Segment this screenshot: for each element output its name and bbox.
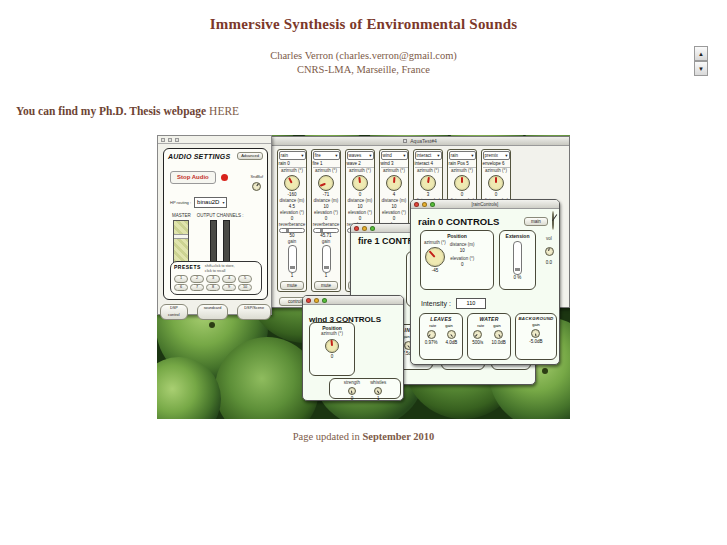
preset-button[interactable]: 5 — [238, 275, 252, 283]
rain-controls-window: [rainControls] rain 0 CONTROLS main Posi… — [410, 199, 560, 365]
up-arrow-icon: ▲ — [698, 51, 704, 57]
preset-button[interactable]: 9 — [222, 284, 236, 292]
mute-button[interactable]: mute — [280, 281, 304, 290]
preset-button[interactable]: 6 — [174, 284, 188, 292]
dial-needle — [429, 250, 436, 257]
traffic-light-icons[interactable] — [354, 226, 375, 231]
channel-strip: fire ▾ fire 1 azimuth (°) -71 distance (… — [311, 149, 341, 292]
water-gain-dial[interactable] — [494, 330, 503, 339]
zoom-icon[interactable] — [370, 226, 375, 231]
strip-name: interact 4 — [415, 160, 442, 168]
mute-button[interactable]: mute — [314, 281, 338, 290]
whistles-label: whistles — [370, 380, 386, 386]
mixer-window-title: AquaTest#4 — [410, 138, 436, 144]
preset-button[interactable]: 7 — [190, 284, 204, 292]
minimize-icon[interactable] — [314, 298, 319, 303]
rain-distance-value[interactable]: 10 — [450, 248, 475, 254]
main-button[interactable]: main — [524, 217, 548, 226]
down-arrow-icon: ▼ — [698, 66, 704, 72]
preset-button[interactable]: 3 — [206, 275, 220, 283]
window-button-icon[interactable] — [168, 138, 172, 142]
gain-slider[interactable] — [322, 245, 331, 273]
strip-name: wave 2 — [347, 160, 374, 168]
presets-label: PRESETS — [174, 264, 201, 273]
dial-needle — [498, 334, 501, 337]
source-dropdown-value: rain — [451, 152, 459, 159]
output-channels-label: OUTPUT CHANNELS : — [197, 213, 244, 219]
dial-needle — [548, 248, 550, 251]
gain-value: 1 — [325, 273, 328, 279]
thesis-text: You can find my Ph.D. Thesis webpage — [16, 105, 206, 117]
software-screenshot: AquaTest#4 rain ▾ rain 0 azimuth (°) -16… — [157, 135, 570, 419]
dial-needle — [535, 333, 536, 336]
hp-routing-label: HP routing : — [170, 200, 191, 206]
dial-needle — [256, 184, 259, 187]
updated-date: September 2010 — [362, 431, 434, 442]
dial-needle — [377, 391, 379, 394]
preset-button[interactable]: 2 — [190, 275, 204, 283]
dial-needle — [358, 176, 361, 183]
background-gain-label: gain — [532, 322, 540, 327]
window-icon — [403, 139, 407, 143]
water-rate-value: 500/s — [472, 340, 483, 346]
azimuth-dial[interactable] — [386, 175, 402, 191]
master-label: MASTER — [172, 213, 191, 219]
extension-value: 0 % — [514, 275, 522, 281]
water-panel: WATER rate gain 500/s 10.0dB — [467, 313, 511, 360]
intensity-numberbox[interactable]: 110 — [456, 298, 486, 309]
dial-needle — [495, 177, 497, 183]
page-title: Immersive Synthesis of Environmental Sou… — [0, 16, 727, 33]
strength-dial[interactable] — [348, 387, 356, 395]
presets-note: shift+click to store, click to recall — [205, 264, 235, 273]
source-dropdown-value: rain — [281, 152, 289, 159]
dial-needle — [461, 177, 463, 183]
intensity-label: Intensity : — [421, 300, 451, 307]
record-dot-icon — [221, 174, 228, 181]
source-dropdown[interactable]: rain ▾ — [279, 151, 306, 160]
audio-settings-panel: AUDIO SETTINGS Advanced Stop Audio SndBu… — [163, 148, 268, 300]
azimuth-label: azimuth (°) — [349, 168, 371, 174]
wind-controls-window: wind 3 CONTROLS Position azimuth (°) 0 s… — [302, 295, 404, 401]
water-title: WATER — [468, 316, 510, 322]
azimuth-dial[interactable] — [420, 175, 436, 191]
azimuth-label: azimuth (°) — [281, 168, 303, 174]
azimuth-label: azimuth (°) — [383, 168, 405, 174]
advanced-button[interactable]: Advanced — [237, 152, 263, 160]
whistles-dial[interactable] — [374, 387, 382, 395]
scroll-spinner[interactable]: ▲ ▼ — [694, 46, 708, 76]
strip-name: rain Pos 5 — [449, 160, 476, 168]
chevron-down-icon: ▾ — [403, 152, 405, 159]
source-dropdown-value: premix — [485, 152, 499, 159]
dsp-scene-button[interactable]: DSP/Scene — [237, 304, 271, 320]
azimuth-dial[interactable] — [352, 175, 368, 191]
source-dropdown-value: interact — [417, 152, 432, 159]
strip-name: envelope 6 — [483, 160, 510, 168]
channel-strip: rain ▾ rain 0 azimuth (°) -160 distance … — [277, 149, 307, 292]
dial-needle — [331, 340, 333, 346]
spin-up-button[interactable]: ▲ — [694, 46, 708, 61]
audio-titlebar[interactable] — [158, 136, 271, 144]
vol-dial[interactable] — [545, 247, 554, 256]
stop-audio-button[interactable]: Stop Audio — [170, 171, 216, 184]
thesis-line: You can find my Ph.D. Thesis webpage HER… — [16, 105, 727, 117]
dial-needle — [427, 176, 430, 183]
dial-needle — [450, 334, 453, 337]
wind-azimuth-label: azimuth (°) — [310, 331, 354, 337]
soundcard-button[interactable]: soundcard — [197, 304, 229, 320]
rain-heading: rain 0 CONTROLS — [418, 216, 499, 227]
dsp-control-button[interactable]: DSP control — [160, 304, 188, 320]
water-rate-dial[interactable] — [473, 330, 482, 339]
dial-needle — [351, 391, 352, 394]
bottom-buttons: DSP control soundcard DSP/Scene — [160, 304, 271, 320]
window-button-icon[interactable] — [161, 138, 165, 142]
wind-position-panel: Position azimuth (°) 0 — [309, 322, 355, 376]
window-button-icon[interactable] — [175, 138, 179, 142]
strength-value: 0 — [351, 396, 354, 402]
source-dropdown[interactable]: fire ▾ — [313, 151, 340, 160]
leaves-rate-label: rate — [429, 323, 436, 328]
azimuth-label: azimuth (°) — [315, 168, 337, 174]
extension-slider[interactable] — [513, 241, 522, 275]
azimuth-dial[interactable] — [284, 175, 300, 191]
chevron-down-icon: ▾ — [505, 152, 507, 159]
water-gain-label: gain — [493, 323, 501, 328]
background-title: BACKGROUND — [516, 316, 556, 321]
dial-needle — [552, 214, 557, 221]
close-icon[interactable] — [306, 298, 311, 303]
clock-dial[interactable] — [552, 211, 554, 230]
audio-settings-window: AUDIO SETTINGS Advanced Stop Audio SndBu… — [157, 135, 272, 315]
dial-needle — [320, 182, 327, 186]
strip-name: wind 3 — [381, 160, 408, 168]
gain-value: 1 — [291, 273, 294, 279]
sndbuf-label: SndBuf — [251, 175, 263, 179]
affiliation-line: CNRS-LMA, Marseille, France — [0, 64, 727, 75]
strip-name: fire 1 — [313, 160, 340, 168]
extension-title: Extension — [506, 233, 530, 239]
preset-row-1: 12345 — [174, 275, 258, 283]
extension-panel: Extension 0 % — [499, 230, 536, 290]
close-icon[interactable] — [354, 226, 359, 231]
background-gain-dial[interactable] — [531, 329, 540, 338]
leaves-rate-dial[interactable] — [427, 330, 436, 339]
hp-routing-value: binau2D — [197, 198, 219, 207]
whistles-value: 1 — [377, 396, 380, 402]
preset-row-2: 678910 — [174, 284, 258, 292]
rain-position-panel: Position azimuth (°) -45 distance (m) 10… — [420, 230, 494, 290]
updated-prefix: Page updated in — [293, 431, 360, 442]
leaves-gain-label: gain — [445, 323, 453, 328]
hp-routing-dropdown[interactable]: binau2D ▾ — [194, 197, 227, 208]
source-dropdown[interactable]: rain ▾ — [449, 151, 476, 160]
rain-titlebar[interactable]: [rainControls] — [411, 200, 559, 209]
rain-azimuth-label: azimuth (°) — [424, 240, 446, 246]
chevron-down-icon: ▾ — [369, 152, 371, 159]
mixer-titlebar[interactable]: AquaTest#4 — [271, 137, 569, 146]
chevron-down-icon: ▾ — [471, 152, 473, 159]
fader-handle[interactable] — [174, 234, 188, 239]
wind-azimuth-dial[interactable] — [325, 339, 339, 353]
wind-titlebar[interactable] — [303, 296, 403, 305]
leaves-panel: LEAVES rate gain 0.97% 4.0dB — [419, 313, 463, 360]
dial-needle — [288, 177, 293, 184]
leaves-title: LEAVES — [420, 316, 462, 322]
dial-needle — [475, 334, 478, 337]
thesis-here-link[interactable]: HERE — [209, 105, 239, 117]
azimuth-dial[interactable] — [318, 175, 334, 191]
rain-window-title: [rainControls] — [411, 202, 559, 207]
chevron-down-icon: ▾ — [335, 152, 337, 159]
sndbuf-dial[interactable] — [252, 182, 261, 191]
source-dropdown[interactable]: waves ▾ — [347, 151, 374, 160]
background-gain-value: -5.0dB — [529, 339, 542, 345]
vol-label: vol — [541, 236, 557, 242]
zoom-icon[interactable] — [322, 298, 327, 303]
water-gain-value: 10.0dB — [491, 340, 505, 346]
traffic-light-icons[interactable] — [306, 298, 327, 303]
author-line: Charles Verron (charles.verron@gmail.com… — [0, 50, 727, 61]
chevron-down-icon: ▾ — [437, 152, 439, 159]
azimuth-dial[interactable] — [488, 175, 504, 191]
leaves-rate-value: 0.97% — [425, 340, 438, 346]
vol-value: 0.0 — [541, 260, 557, 266]
strip-name: rain 0 — [279, 160, 306, 168]
source-dropdown-value: wind — [383, 152, 392, 159]
chevron-down-icon: ▾ — [222, 198, 224, 207]
strength-label: strength — [344, 380, 360, 386]
azimuth-label: azimuth (°) — [451, 168, 473, 174]
rain-azimuth-value: -45 — [432, 268, 439, 274]
reverberance-slider[interactable] — [279, 228, 305, 233]
preset-button[interactable]: 8 — [206, 284, 220, 292]
source-dropdown[interactable]: wind ▾ — [381, 151, 408, 160]
dial-needle — [428, 334, 431, 337]
preset-button[interactable]: 1 — [174, 275, 188, 283]
dial-needle — [393, 177, 395, 184]
source-dropdown-value: waves — [349, 152, 362, 159]
chevron-down-icon: ▾ — [301, 152, 303, 159]
wind-azimuth-value: 0 — [331, 354, 334, 360]
preset-button[interactable]: 4 — [222, 275, 236, 283]
source-dropdown[interactable]: interact ▾ — [415, 151, 442, 160]
minimize-icon[interactable] — [362, 226, 367, 231]
source-dropdown-value: fire — [315, 152, 321, 159]
azimuth-dial[interactable] — [454, 175, 470, 191]
source-dropdown[interactable]: premix ▾ — [483, 151, 510, 160]
background-panel: BACKGROUND gain -5.0dB — [515, 313, 557, 360]
audio-settings-title: AUDIO SETTINGS — [168, 153, 230, 160]
leaves-gain-value: 4.0dB — [446, 340, 458, 346]
wind-bottom-panel: strength 0 whistles 1 — [329, 378, 401, 399]
reverberance-slider[interactable] — [313, 228, 339, 233]
presets-panel: PRESETS shift+click to store, click to r… — [170, 261, 262, 295]
azimuth-label: azimuth (°) — [485, 168, 507, 174]
leaves-gain-dial[interactable] — [447, 330, 456, 339]
updated-caption: Page updated in September 2010 — [0, 431, 727, 442]
spin-down-button[interactable]: ▼ — [694, 61, 708, 76]
rain-elevation-value[interactable]: 0 — [450, 262, 475, 268]
preset-button[interactable]: 10 — [238, 284, 252, 292]
rain-azimuth-dial[interactable] — [425, 247, 445, 267]
azimuth-label: azimuth (°) — [417, 168, 439, 174]
water-rate-label: rate — [477, 323, 484, 328]
gain-slider[interactable] — [288, 245, 297, 273]
